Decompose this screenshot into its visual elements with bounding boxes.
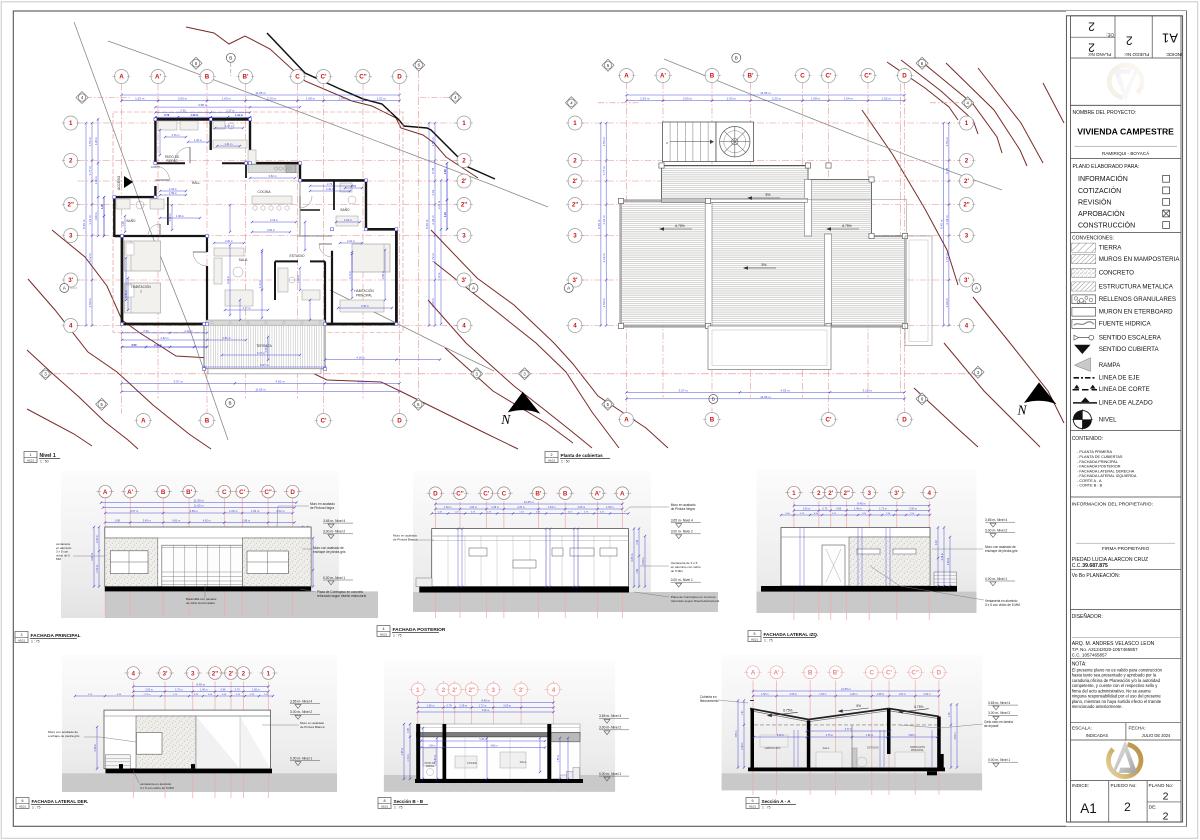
svg-text:ROPAS: ROPAS bbox=[167, 159, 178, 163]
svg-text:2.75 m: 2.75 m bbox=[826, 735, 833, 737]
svg-text:4.19 m: 4.19 m bbox=[270, 218, 278, 222]
svg-text:2.42 m: 2.42 m bbox=[185, 329, 193, 333]
svg-text:2.20 m: 2.20 m bbox=[772, 97, 782, 101]
svg-text:DISEÑADOR:: DISEÑADOR: bbox=[1072, 613, 1103, 620]
svg-text:4: 4 bbox=[965, 323, 969, 330]
svg-text:ESTUDIO: ESTUDIO bbox=[867, 746, 879, 750]
svg-text:1 : 50: 1 : 50 bbox=[561, 460, 570, 464]
svg-text:4.77 m: 4.77 m bbox=[243, 306, 251, 310]
svg-text:5.37 m: 5.37 m bbox=[257, 351, 265, 355]
svg-text:2': 2' bbox=[964, 178, 969, 185]
svg-text:A: A bbox=[751, 669, 756, 676]
svg-text:SALA: SALA bbox=[520, 760, 527, 764]
svg-text:REVISIÓN: REVISIÓN bbox=[1078, 197, 1111, 206]
svg-text:1.41 m: 1.41 m bbox=[235, 114, 243, 117]
svg-text:A: A bbox=[119, 74, 124, 81]
svg-text:0.00 m- Nivel 1: 0.00 m- Nivel 1 bbox=[599, 772, 621, 776]
svg-text:fibrocemento: fibrocemento bbox=[700, 699, 719, 703]
svg-text:1.43: 1.43 bbox=[431, 190, 435, 196]
svg-text:LINEA DE EJE: LINEA DE EJE bbox=[1099, 375, 1140, 382]
svg-text:firma del acto administrativo.: firma del acto administrativo. No se asu… bbox=[1072, 688, 1152, 693]
svg-text:3.00 m- Nivel 2: 3.00 m- Nivel 2 bbox=[985, 528, 1007, 532]
svg-text:2.42 m: 2.42 m bbox=[143, 519, 151, 523]
svg-text:2.42 m: 2.42 m bbox=[742, 743, 744, 750]
svg-text:2.49 m: 2.49 m bbox=[326, 187, 334, 191]
svg-text:2": 2" bbox=[68, 202, 74, 209]
svg-text:C": C" bbox=[456, 490, 464, 497]
svg-text:competente, y cuente con el re: competente, y cuente con el respectivo s… bbox=[1072, 683, 1159, 688]
svg-text:COCINA: COCINA bbox=[467, 761, 477, 765]
svg-text:2": 2" bbox=[572, 202, 578, 209]
svg-text:4: 4 bbox=[573, 323, 577, 330]
svg-text:B: B bbox=[710, 417, 715, 424]
svg-text:C": C" bbox=[864, 73, 871, 80]
svg-text:5%: 5% bbox=[762, 263, 767, 267]
svg-text:3.00 m- Nivel 2: 3.00 m- Nivel 2 bbox=[988, 711, 1010, 715]
svg-text:6.75%: 6.75% bbox=[842, 224, 852, 228]
svg-text:A: A bbox=[624, 73, 629, 80]
svg-text:C': C' bbox=[826, 73, 832, 80]
svg-text:A101: A101 bbox=[749, 805, 756, 809]
svg-text:5.36 m: 5.36 m bbox=[479, 738, 486, 741]
svg-text:2.86 m: 2.86 m bbox=[242, 519, 250, 523]
svg-text:3.57 m: 3.57 m bbox=[679, 388, 689, 392]
svg-text:1.36: 1.36 bbox=[949, 712, 951, 717]
svg-text:FECHA:: FECHA: bbox=[1129, 726, 1146, 731]
svg-text:JULIO DE 2024: JULIO DE 2024 bbox=[1142, 733, 1171, 738]
svg-text:PRINCIPAL: PRINCIPAL bbox=[356, 293, 373, 297]
svg-text:2': 2' bbox=[573, 178, 578, 185]
svg-text:3': 3' bbox=[894, 490, 900, 497]
svg-text:2.20 m: 2.20 m bbox=[267, 97, 277, 101]
svg-text:2.39 m: 2.39 m bbox=[431, 215, 435, 225]
svg-text:3.00 m: 3.00 m bbox=[642, 558, 645, 565]
svg-text:SENTIDO CUBIERTA: SENTIDO CUBIERTA bbox=[1099, 346, 1160, 353]
svg-text:1.58 m: 1.58 m bbox=[558, 755, 560, 762]
svg-text:4.77 m: 4.77 m bbox=[845, 729, 852, 731]
svg-text:3: 3 bbox=[191, 670, 195, 677]
svg-text:1 : 75: 1 : 75 bbox=[764, 639, 773, 643]
svg-text:3.00 m- Nivel 2: 3.00 m- Nivel 2 bbox=[290, 710, 312, 714]
svg-text:1.64 m: 1.64 m bbox=[251, 509, 260, 513]
svg-text:2': 2' bbox=[462, 178, 467, 185]
svg-text:2.79 m: 2.79 m bbox=[327, 182, 335, 186]
svg-text:LINEA DE CORTE: LINEA DE CORTE bbox=[1099, 386, 1150, 393]
svg-text:0.81 m: 0.81 m bbox=[223, 336, 231, 340]
svg-text:B: B bbox=[712, 397, 715, 402]
svg-text:INDICADAS: INDICADAS bbox=[1086, 733, 1109, 738]
svg-text:1.64 m: 1.64 m bbox=[844, 97, 854, 101]
svg-text:1.43 m: 1.43 m bbox=[88, 215, 92, 225]
svg-text:CONCRETO: CONCRETO bbox=[1099, 270, 1134, 277]
svg-text:2: 2 bbox=[551, 453, 553, 457]
svg-text:enchape de piedra gris: enchape de piedra gris bbox=[985, 549, 1018, 553]
svg-text:2.00: 2.00 bbox=[935, 540, 938, 545]
svg-text:INDICE:: INDICE: bbox=[1072, 783, 1089, 788]
svg-text:PLIEGO No:: PLIEGO No: bbox=[1111, 783, 1137, 788]
svg-text:3': 3' bbox=[964, 277, 969, 284]
svg-text:B': B' bbox=[748, 73, 754, 80]
svg-text:4: 4 bbox=[69, 323, 73, 330]
svg-text:1.64 m: 1.64 m bbox=[898, 693, 905, 696]
svg-text:1.60: 1.60 bbox=[636, 568, 639, 573]
svg-text:de vidrio Horizontales: de vidrio Horizontales bbox=[186, 601, 215, 605]
svg-text:C: C bbox=[502, 490, 507, 497]
svg-text:2: 2 bbox=[573, 158, 577, 165]
svg-text:5%: 5% bbox=[856, 704, 861, 708]
svg-text:LINEA DE ALZADO: LINEA DE ALZADO bbox=[1099, 399, 1153, 406]
svg-text:1.09 m: 1.09 m bbox=[877, 693, 884, 696]
svg-text:1.09 m: 1.09 m bbox=[229, 509, 238, 513]
svg-text:- FACHADA POSTERIOR: - FACHADA POSTERIOR bbox=[1077, 465, 1121, 469]
svg-text:3.57 m: 3.57 m bbox=[174, 379, 184, 383]
svg-text:0.50: 0.50 bbox=[132, 344, 137, 347]
svg-text:enchape de piedra gris: enchape de piedra gris bbox=[313, 550, 346, 554]
svg-text:0.00 m: 0.00 m bbox=[151, 165, 160, 169]
svg-text:4: 4 bbox=[383, 627, 385, 631]
svg-text:3.45 m: 3.45 m bbox=[777, 735, 784, 737]
svg-text:3.00 m- Nivel 2: 3.00 m- Nivel 2 bbox=[599, 726, 621, 730]
svg-text:0.96: 0.96 bbox=[221, 689, 226, 692]
svg-text:C': C' bbox=[321, 74, 327, 81]
svg-text:2.50 m: 2.50 m bbox=[88, 298, 92, 308]
svg-text:1.26: 1.26 bbox=[101, 204, 104, 209]
svg-text:A1: A1 bbox=[1080, 801, 1097, 816]
svg-text:2.39 m: 2.39 m bbox=[459, 705, 467, 708]
svg-text:de Pintura Negra: de Pintura Negra bbox=[310, 506, 334, 510]
svg-text:C: C bbox=[800, 73, 805, 80]
svg-text:2.52 m: 2.52 m bbox=[161, 336, 169, 340]
svg-text:11.65 m: 11.65 m bbox=[194, 504, 205, 508]
svg-text:3: 3 bbox=[69, 233, 73, 240]
svg-text:DE:: DE: bbox=[1149, 805, 1157, 810]
svg-text:2: 2 bbox=[242, 670, 246, 677]
svg-text:1 : 50: 1 : 50 bbox=[40, 460, 49, 464]
svg-text:- PLANTA DE CUBIERTAS: - PLANTA DE CUBIERTAS bbox=[1077, 455, 1123, 459]
svg-text:3.72 m: 3.72 m bbox=[437, 273, 441, 281]
svg-text:0.76: 0.76 bbox=[164, 114, 169, 117]
svg-text:2.42 m: 2.42 m bbox=[154, 344, 162, 347]
svg-text:COCINA: COCINA bbox=[257, 190, 271, 194]
svg-text:A101: A101 bbox=[381, 805, 388, 809]
svg-text:0.00 m- Nivel 1: 0.00 m- Nivel 1 bbox=[671, 578, 693, 582]
svg-text:1.08 m: 1.08 m bbox=[491, 506, 499, 509]
svg-text:3: 3 bbox=[462, 233, 466, 240]
svg-text:1 : 75: 1 : 75 bbox=[762, 806, 771, 810]
svg-text:FACHADA LATERAL IZQ.: FACHADA LATERAL IZQ. bbox=[764, 632, 819, 637]
svg-text:D: D bbox=[397, 418, 402, 425]
svg-text:2.24: 2.24 bbox=[444, 212, 447, 217]
svg-text:2.66 m: 2.66 m bbox=[381, 271, 385, 279]
svg-text:2": 2" bbox=[843, 490, 850, 497]
svg-text:3.65 m: 3.65 m bbox=[736, 730, 738, 737]
svg-text:1.70 m: 1.70 m bbox=[258, 280, 262, 288]
svg-text:1.53 m: 1.53 m bbox=[640, 97, 650, 101]
svg-text:2.05 m: 2.05 m bbox=[95, 535, 99, 543]
svg-text:N: N bbox=[1016, 402, 1027, 417]
svg-text:B': B' bbox=[186, 489, 193, 496]
svg-text:C': C' bbox=[826, 417, 832, 424]
svg-text:El presente plano no es valido: El presente plano no es valido para cons… bbox=[1072, 667, 1163, 672]
svg-text:3.65 m: 3.65 m bbox=[630, 554, 634, 562]
svg-text:1.50 m: 1.50 m bbox=[252, 689, 260, 692]
svg-text:0.70: 0.70 bbox=[822, 508, 827, 511]
svg-text:NOMBRE DEL PROYECTO:: NOMBRE DEL PROYECTO: bbox=[1073, 110, 1137, 116]
svg-text:Vo Bo PLANEACIÓN:: Vo Bo PLANEACIÓN: bbox=[1072, 572, 1120, 579]
svg-text:3.48 m: 3.48 m bbox=[941, 553, 944, 560]
svg-text:9: 9 bbox=[752, 799, 754, 803]
svg-text:reforzado segun diseño estruct: reforzado segun diseño estructural bbox=[317, 594, 366, 598]
svg-text:DE:: DE: bbox=[1106, 32, 1114, 37]
svg-text:2: 2 bbox=[442, 687, 446, 694]
svg-text:CONVENCIONES:: CONVENCIONES: bbox=[1072, 236, 1114, 242]
svg-text:A101: A101 bbox=[18, 639, 25, 643]
svg-text:3.60 m: 3.60 m bbox=[267, 228, 275, 232]
svg-text:2: 2 bbox=[69, 158, 73, 165]
svg-text:2.00 m: 2.00 m bbox=[431, 298, 435, 308]
svg-text:ESTRUCTURA METALICA: ESTRUCTURA METALICA bbox=[1099, 283, 1174, 290]
svg-text:2': 2' bbox=[828, 490, 834, 497]
svg-text:curaduria,oficina de Planeació: curaduria,oficina de Planeación y/o la a… bbox=[1072, 678, 1161, 683]
svg-text:A': A' bbox=[773, 669, 780, 676]
svg-text:SALA: SALA bbox=[823, 746, 830, 750]
svg-text:2: 2 bbox=[1126, 34, 1133, 48]
svg-text:B: B bbox=[205, 74, 210, 81]
svg-text:8.45 m: 8.45 m bbox=[481, 699, 490, 703]
svg-text:1.56 m: 1.56 m bbox=[602, 137, 606, 147]
svg-text:D: D bbox=[290, 489, 295, 496]
svg-text:0.00 m- Nivel 1: 0.00 m- Nivel 1 bbox=[988, 758, 1010, 762]
svg-text:A101: A101 bbox=[27, 459, 34, 463]
svg-text:0.78: 0.78 bbox=[945, 168, 949, 174]
svg-text:FACHADA PRINCIPAL: FACHADA PRINCIPAL bbox=[31, 633, 81, 639]
svg-text:reforzado segun Diseño Estruct: reforzado segun Diseño Estructural bbox=[671, 599, 720, 603]
svg-text:- FACHADA LATERAL IZQUIERDA: - FACHADA LATERAL IZQUIERDA bbox=[1077, 474, 1137, 478]
svg-text:4: 4 bbox=[927, 490, 931, 497]
svg-text:PLANO No:: PLANO No: bbox=[1088, 52, 1112, 57]
svg-text:1.20 m: 1.20 m bbox=[194, 138, 202, 142]
svg-text:ROPAS: ROPAS bbox=[426, 765, 435, 768]
svg-text:1.41 m: 1.41 m bbox=[225, 142, 233, 146]
svg-text:2': 2' bbox=[229, 670, 235, 677]
svg-text:hasta tanto sea presentado y a: hasta tanto sea presentado y aprobado po… bbox=[1072, 673, 1157, 678]
svg-text:0.70: 0.70 bbox=[235, 689, 240, 692]
svg-text:C: C bbox=[295, 74, 300, 81]
svg-text:8: 8 bbox=[384, 799, 386, 803]
svg-text:D: D bbox=[937, 669, 942, 676]
svg-text:D: D bbox=[397, 74, 402, 81]
svg-text:0.78: 0.78 bbox=[447, 705, 452, 708]
svg-text:3.45 m: 3.45 m bbox=[124, 290, 128, 298]
svg-text:5%: 5% bbox=[766, 193, 771, 197]
svg-text:3.65 m- Nivel 4: 3.65 m- Nivel 4 bbox=[988, 701, 1010, 705]
svg-text:1.53 m: 1.53 m bbox=[135, 97, 145, 101]
svg-text:6.75%: 6.75% bbox=[783, 709, 792, 713]
svg-text:2": 2" bbox=[461, 202, 467, 209]
svg-text:2.00 m: 2.00 m bbox=[503, 705, 511, 708]
svg-text:1.98 m: 1.98 m bbox=[94, 213, 98, 221]
svg-text:8.45 m: 8.45 m bbox=[197, 683, 206, 687]
svg-text:2": 2" bbox=[963, 202, 969, 209]
svg-text:B: B bbox=[808, 669, 813, 676]
svg-text:11.65 m: 11.65 m bbox=[255, 388, 266, 392]
svg-text:11.65 m: 11.65 m bbox=[841, 687, 852, 691]
svg-text:1.56 m: 1.56 m bbox=[427, 705, 435, 708]
svg-text:A: A bbox=[103, 489, 108, 496]
svg-text:S: S bbox=[665, 142, 669, 144]
svg-text:FACHADA POSTERIOR: FACHADA POSTERIOR bbox=[393, 627, 446, 633]
svg-text:3': 3' bbox=[68, 277, 73, 284]
svg-text:INFORMACION DEL PROPIETARIO:: INFORMACION DEL PROPIETARIO: bbox=[1072, 502, 1153, 508]
svg-text:3': 3' bbox=[462, 277, 467, 284]
svg-text:ESCALA:: ESCALA: bbox=[1072, 726, 1092, 731]
svg-text:0.96: 0.96 bbox=[836, 508, 841, 511]
svg-text:3: 3 bbox=[21, 633, 23, 637]
svg-text:C": C" bbox=[264, 489, 272, 496]
svg-text:0.30: 0.30 bbox=[143, 329, 149, 333]
svg-text:Sección B - B: Sección B - B bbox=[394, 799, 424, 804]
svg-text:0.30: 0.30 bbox=[181, 109, 187, 113]
svg-text:PRINCIPAL: PRINCIPAL bbox=[911, 749, 925, 752]
svg-text:C.C. 1057465857: C.C. 1057465857 bbox=[1072, 652, 1108, 657]
svg-text:11.65 m: 11.65 m bbox=[524, 500, 535, 504]
svg-text:SALA: SALA bbox=[239, 258, 248, 262]
svg-text:FIRMA PROPIETARIO: FIRMA PROPIETARIO bbox=[1102, 546, 1150, 551]
svg-text:A1: A1 bbox=[1162, 30, 1178, 45]
svg-text:COTIZACIÓN: COTIZACIÓN bbox=[1078, 186, 1121, 195]
svg-text:1.56 m: 1.56 m bbox=[428, 746, 435, 748]
svg-text:2.20 m: 2.20 m bbox=[850, 693, 857, 696]
svg-text:1.96 m: 1.96 m bbox=[176, 214, 184, 218]
svg-text:6: 6 bbox=[22, 799, 24, 803]
svg-text:APROBACIÓN: APROBACIÓN bbox=[1078, 209, 1125, 218]
svg-text:A101: A101 bbox=[751, 638, 758, 642]
svg-text:T.P. No. A31242020-1057465857: T.P. No. A31242020-1057465857 bbox=[1072, 647, 1138, 652]
svg-text:1.52 m: 1.52 m bbox=[882, 97, 892, 101]
svg-text:3.65 m- Nivel 4: 3.65 m- Nivel 4 bbox=[323, 519, 345, 523]
svg-text:TIERRA: TIERRA bbox=[1099, 244, 1123, 251]
svg-text:4.80 m: 4.80 m bbox=[490, 746, 497, 748]
svg-text:1.63 m: 1.63 m bbox=[819, 693, 826, 696]
svg-text:1.63 m: 1.63 m bbox=[548, 506, 556, 509]
svg-text:1.40 m: 1.40 m bbox=[854, 508, 862, 511]
svg-text:A': A' bbox=[155, 74, 161, 81]
svg-text:CONSTRUCCIÓN: CONSTRUCCIÓN bbox=[1078, 220, 1135, 229]
svg-text:mencionado anteriormente.: mencionado anteriormente. bbox=[1072, 704, 1123, 709]
svg-text:4: 4 bbox=[552, 687, 556, 694]
svg-text:1.72 m: 1.72 m bbox=[431, 253, 435, 263]
svg-text:2: 2 bbox=[965, 158, 969, 165]
svg-text:4.92 m: 4.92 m bbox=[780, 388, 790, 392]
svg-text:3.52 m: 3.52 m bbox=[269, 174, 277, 178]
svg-text:1 : 75: 1 : 75 bbox=[32, 806, 41, 810]
svg-text:3': 3' bbox=[573, 277, 578, 284]
svg-text:3': 3' bbox=[163, 670, 169, 677]
svg-text:3 x 5 con vidrio de 5 MM: 3 x 5 con vidrio de 5 MM bbox=[985, 603, 1020, 607]
svg-text:1: 1 bbox=[792, 490, 796, 497]
svg-text:RAMPA: RAMPA bbox=[1099, 362, 1121, 369]
svg-text:1.72 m: 1.72 m bbox=[945, 253, 949, 263]
svg-text:3.65 m- Nivel 4: 3.65 m- Nivel 4 bbox=[290, 699, 312, 703]
svg-text:8.45 m: 8.45 m bbox=[940, 219, 944, 229]
svg-text:de Pintura Negra: de Pintura Negra bbox=[671, 507, 695, 511]
svg-text:1.72 m: 1.72 m bbox=[175, 689, 183, 692]
svg-text:1.26 m: 1.26 m bbox=[94, 137, 98, 145]
svg-text:1.64 m: 1.64 m bbox=[469, 506, 477, 509]
svg-text:C': C' bbox=[886, 669, 893, 676]
svg-text:1.52 m: 1.52 m bbox=[923, 693, 930, 696]
svg-text:de Pintura Blanca: de Pintura Blanca bbox=[300, 725, 325, 729]
svg-text:plano, mientras no haya surtid: plano, mientras no haya surtido efecto e… bbox=[1072, 699, 1162, 704]
svg-text:INDICE:: INDICE: bbox=[1166, 52, 1183, 57]
svg-text:A: A bbox=[620, 490, 625, 497]
svg-text:B': B' bbox=[833, 669, 840, 676]
svg-text:2": 2" bbox=[468, 687, 475, 694]
svg-text:MUROS EN MAMPOSTERIA: MUROS EN MAMPOSTERIA bbox=[1099, 256, 1181, 263]
svg-text:1.53 m: 1.53 m bbox=[606, 506, 614, 509]
svg-text:1.28: 1.28 bbox=[121, 221, 125, 227]
svg-text:0.00 m- Nivel 1: 0.00 m- Nivel 1 bbox=[290, 757, 312, 761]
svg-text:11.65 m: 11.65 m bbox=[255, 91, 266, 95]
svg-text:Sección A - A: Sección A - A bbox=[762, 799, 792, 804]
svg-text:1.40 m: 1.40 m bbox=[200, 689, 208, 692]
svg-text:de 5 Mkt: de 5 Mkt bbox=[671, 569, 683, 573]
svg-text:3.16 m: 3.16 m bbox=[358, 379, 368, 383]
svg-text:11.65 m: 11.65 m bbox=[760, 395, 771, 399]
svg-text:A': A' bbox=[127, 489, 134, 496]
svg-text:1.43 m: 1.43 m bbox=[602, 215, 606, 225]
svg-text:2.05 m: 2.05 m bbox=[578, 506, 586, 509]
svg-text:N: N bbox=[500, 412, 511, 427]
svg-text:4.62 m: 4.62 m bbox=[203, 519, 211, 523]
svg-text:SENTIDO ESCALERA: SENTIDO ESCALERA bbox=[1099, 334, 1162, 341]
svg-text:1: 1 bbox=[267, 670, 271, 677]
svg-text:5.37 m: 5.37 m bbox=[260, 363, 269, 367]
svg-text:ESTUDIO: ESTUDIO bbox=[289, 254, 304, 258]
svg-text:3.65 m- Nivel 4: 3.65 m- Nivel 4 bbox=[599, 714, 621, 718]
svg-text:MM: MM bbox=[56, 557, 61, 561]
svg-text:2.39 m: 2.39 m bbox=[945, 215, 949, 225]
svg-text:C': C' bbox=[321, 418, 327, 425]
svg-text:39.687.875: 39.687.875 bbox=[1082, 563, 1108, 569]
svg-text:3.00 m- Nivel 2: 3.00 m- Nivel 2 bbox=[671, 530, 693, 534]
svg-text:ninguna responsabilidad por el: ninguna responsabilidad por el uso del p… bbox=[1072, 694, 1162, 699]
svg-text:1: 1 bbox=[30, 453, 32, 457]
svg-text:Nivel 1: Nivel 1 bbox=[40, 453, 56, 459]
svg-text:1.64 m: 1.64 m bbox=[339, 97, 349, 101]
svg-text:1: 1 bbox=[462, 120, 466, 127]
svg-text:INFORMACIÓN: INFORMACIÓN bbox=[1078, 174, 1128, 183]
svg-text:3.06 m: 3.06 m bbox=[361, 304, 369, 308]
svg-text:1.72 m: 1.72 m bbox=[879, 508, 887, 511]
svg-text:1.08 m: 1.08 m bbox=[306, 97, 316, 101]
svg-text:2": 2" bbox=[212, 670, 219, 677]
svg-text:B': B' bbox=[535, 490, 542, 497]
svg-text:FUENTE HIDRICA: FUENTE HIDRICA bbox=[1099, 321, 1152, 328]
svg-text:1.63 m: 1.63 m bbox=[727, 97, 737, 101]
svg-text:1.50 m: 1.50 m bbox=[95, 565, 99, 573]
svg-text:11.65 m: 11.65 m bbox=[760, 91, 771, 95]
svg-text:4: 4 bbox=[132, 670, 136, 677]
svg-text:C": C" bbox=[359, 74, 366, 81]
svg-text:4.18 m: 4.18 m bbox=[356, 356, 365, 360]
svg-text:B: B bbox=[161, 489, 166, 496]
svg-text:A101: A101 bbox=[19, 805, 26, 809]
svg-text:MURON EN ETERBOARD: MURON EN ETERBOARD bbox=[1099, 309, 1173, 316]
svg-text:A101: A101 bbox=[548, 459, 555, 463]
svg-text:1.98 m: 1.98 m bbox=[168, 214, 172, 222]
svg-text:HABITACIÓN: HABITACIÓN bbox=[354, 288, 374, 293]
